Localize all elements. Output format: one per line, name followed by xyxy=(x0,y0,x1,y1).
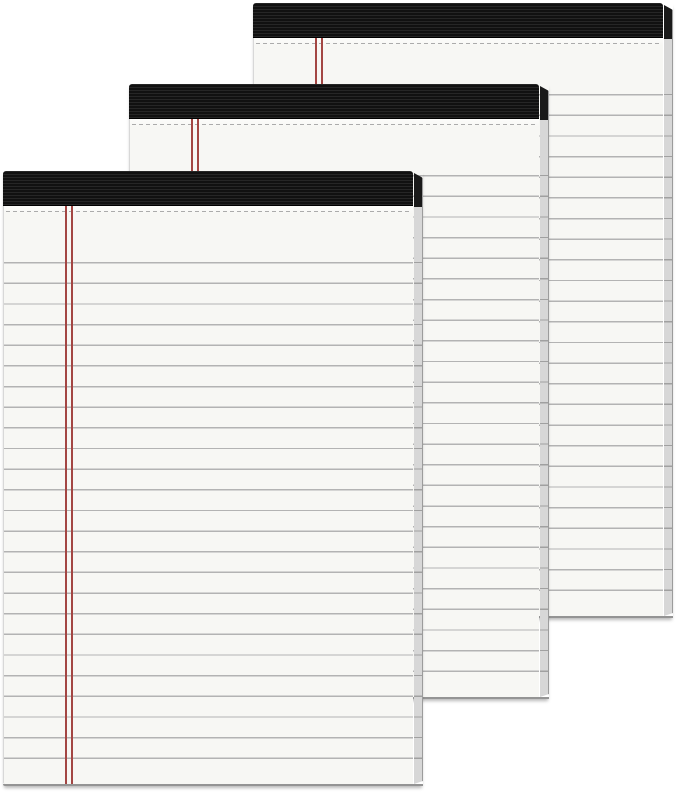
notepad-front xyxy=(3,171,423,786)
perforation-line xyxy=(6,211,411,213)
perforation-line xyxy=(256,43,661,45)
paper-sheet xyxy=(3,204,413,784)
red-margin-line-right xyxy=(71,206,73,784)
perforation-line xyxy=(132,124,537,126)
red-margin-line-left xyxy=(65,206,67,784)
page-edge-sheet-ticks xyxy=(414,262,422,760)
binding-strip xyxy=(253,3,663,38)
product-photo-stage xyxy=(0,0,679,796)
page-edge-sheet-ticks xyxy=(664,94,672,592)
page-edge-sheet-ticks xyxy=(540,175,548,673)
binding-strip xyxy=(3,171,413,206)
binding-strip xyxy=(129,84,539,119)
